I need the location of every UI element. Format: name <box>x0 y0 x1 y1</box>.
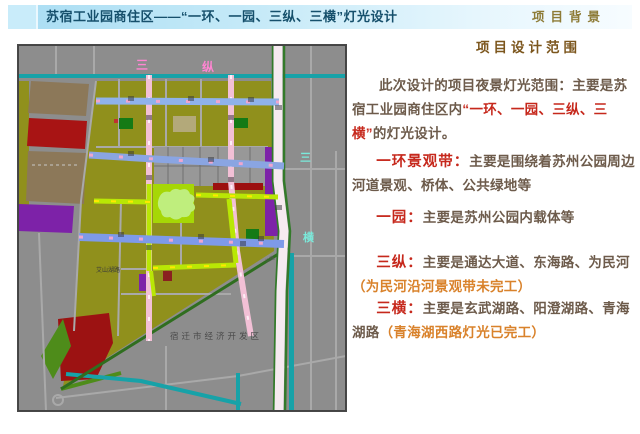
title-accent-square <box>8 5 38 29</box>
label-heng-2: 横 <box>303 230 315 244</box>
intro-post: 的灯光设计。 <box>373 126 456 141</box>
label-zong-2: 纵 <box>202 59 214 74</box>
title-bar: 苏宿工业园商住区——“一环、一园、三纵、三横”灯光设计 项目背景 <box>8 5 632 29</box>
item-desc: 主要是通达大道、东海路、为民河 <box>423 255 630 270</box>
item-term: 一园： <box>376 210 423 226</box>
scope-item-park: 一园：主要是苏州公园内载体等 <box>352 206 636 230</box>
page-title: 苏宿工业园商住区——“一环、一园、三纵、三横”灯光设计 <box>46 5 398 29</box>
item-desc: 主要是苏州公园内载体等 <box>423 210 575 225</box>
item-term: 一环景观带： <box>376 154 469 170</box>
item-note: （青海湖西路灯光已完工） <box>380 325 546 340</box>
item-term: 三纵： <box>376 255 423 271</box>
design-scope-panel: 项目设计范围 此次设计的项目夜景灯光范围：主要是苏宿工业园商住区内“一环、一园、… <box>350 34 638 414</box>
suzhou-park <box>153 184 195 223</box>
item-note: （为民河沿河景观带未完工） <box>352 279 531 294</box>
scope-item-horizontals: 三横：主要是玄武湖路、阳澄湖路、青海湖路（青海湖西路灯光已完工） <box>352 297 636 344</box>
label-district: 宿迁市经济开发区 <box>170 331 262 341</box>
label-zong-1: 三 <box>136 58 148 72</box>
map-svg: 三 纵 三 横 宿迁市经济开发区 艾山湖路 公路 <box>18 45 346 411</box>
section-label: 项目背景 <box>532 5 606 29</box>
scope-item-ring: 一环景观带：主要是围绕着苏州公园周边河道景观、桥体、公共绿地等 <box>352 150 636 197</box>
slide: 苏宿工业园商住区——“一环、一园、三纵、三横”灯光设计 项目背景 <box>0 0 640 434</box>
scope-item-verticals: 三纵：主要是通达大道、东海路、为民河（为民河沿河景观带未完工） <box>352 251 636 298</box>
panel-heading: 项目设计范围 <box>476 36 581 56</box>
land-use-map: 三 纵 三 横 宿迁市经济开发区 艾山湖路 公路 <box>17 44 347 412</box>
label-small-road: 艾山湖路 <box>96 266 120 274</box>
item-term: 三横： <box>376 301 423 317</box>
label-heng-1: 三 <box>300 151 311 164</box>
intro-paragraph: 此次设计的项目夜景灯光范围：主要是苏宿工业园商住区内“一环、一园、三纵、三横”的… <box>352 74 636 146</box>
